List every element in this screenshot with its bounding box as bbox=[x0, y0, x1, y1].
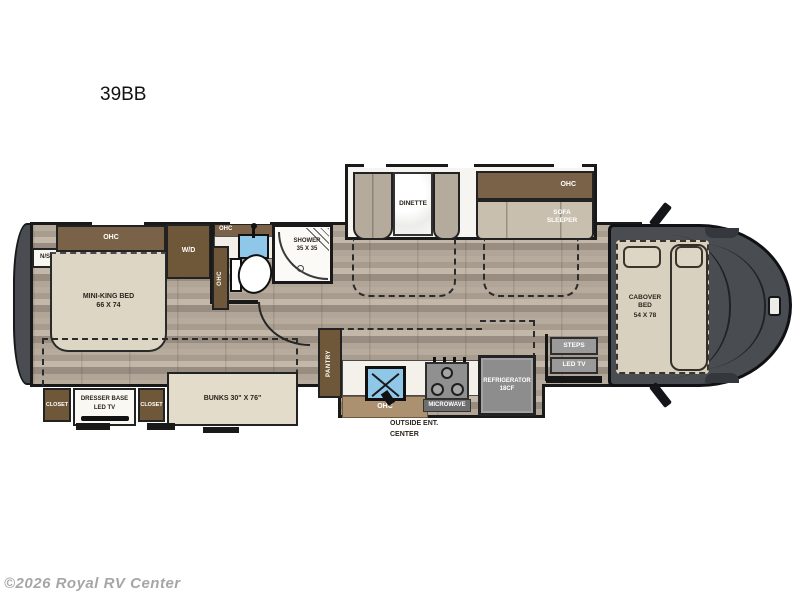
bunks: BUNKS 30" X 76" bbox=[167, 372, 298, 426]
dinette-sofa-slideout: DINETTE OHC SOFA SLEEPER bbox=[345, 164, 597, 240]
cooktop bbox=[425, 362, 469, 400]
bedroom-ohc-label: OHC bbox=[103, 234, 119, 243]
outside-entertainment-label: OUTSIDE ENT. CENTER bbox=[390, 420, 500, 440]
bath-side-cabinet: OHC bbox=[212, 246, 229, 310]
sofa-sleeper-label: SOFA SLEEPER bbox=[532, 209, 592, 225]
support-foot bbox=[203, 427, 239, 433]
bedroom-overhead-cabinet: OHC bbox=[56, 225, 166, 252]
support-foot bbox=[76, 423, 110, 430]
fender-flare bbox=[705, 373, 739, 383]
tv-bar-icon bbox=[81, 416, 129, 421]
kitchen-sink bbox=[365, 366, 406, 401]
dinette-table: DINETTE bbox=[393, 172, 433, 236]
pantry-label: PANTRY bbox=[326, 350, 334, 377]
fender-flare bbox=[705, 228, 739, 238]
cabover-bed: CABOVER BED 54 X 78 bbox=[616, 240, 709, 374]
floorplan-canvas: 39BB DINETTE OHC SOFA SLEEPER OHC bbox=[0, 0, 800, 600]
entry-threshold bbox=[546, 376, 602, 383]
closet-right: CLOSET bbox=[138, 388, 165, 422]
mini-king-bed: MINI-KING BED 66 X 74 bbox=[50, 252, 167, 352]
window-gap bbox=[364, 164, 386, 168]
steps-label: STEPS bbox=[563, 342, 584, 350]
entry-steps: STEPS bbox=[550, 337, 598, 355]
page-title: 39BB bbox=[100, 84, 146, 106]
sofa-retracted-outline bbox=[483, 239, 579, 297]
washer-dryer: W/D bbox=[166, 224, 211, 279]
shower-drain-icon bbox=[297, 265, 304, 272]
shower: SHOWER 35 X 35 bbox=[272, 224, 333, 284]
cooktop-knob bbox=[443, 357, 446, 362]
bath-side-ohc-label: OHC bbox=[217, 271, 225, 286]
dinette-retracted-outline bbox=[352, 239, 456, 297]
burner-icon bbox=[441, 367, 453, 379]
pantry: PANTRY bbox=[318, 328, 342, 398]
cooktop-knob bbox=[453, 357, 456, 362]
watermark: ©2026 Royal RV Center bbox=[4, 575, 181, 592]
entry-wall bbox=[545, 334, 548, 381]
bath-ohc-label: OHC bbox=[219, 226, 232, 234]
dresser-base: DRESSER BASE LED TV bbox=[73, 388, 136, 426]
sofa-overhead-cabinet: OHC bbox=[476, 171, 594, 200]
shower-label: SHOWER 35 X 35 bbox=[283, 238, 331, 253]
burner-icon bbox=[451, 383, 464, 396]
entry-led-tv-label: LED TV bbox=[562, 361, 585, 369]
faucet-icon bbox=[251, 223, 257, 229]
refrigerator: REFRIGERATOR 18CF bbox=[478, 355, 536, 416]
pillow bbox=[675, 246, 703, 268]
cabover-bed-label: CABOVER BED 54 X 78 bbox=[619, 294, 671, 320]
closet-left: CLOSET bbox=[43, 388, 71, 422]
sofa-sleeper: SOFA SLEEPER bbox=[476, 200, 594, 240]
pillow bbox=[623, 246, 661, 268]
sofa-ohc-label: OHC bbox=[560, 181, 576, 190]
dinette-label: DINETTE bbox=[399, 200, 427, 208]
window-gap bbox=[554, 164, 582, 168]
window-gap bbox=[448, 164, 474, 168]
burner-icon bbox=[431, 383, 444, 396]
microwave-label: MICROWAVE bbox=[428, 402, 465, 410]
dinette-bench-left bbox=[353, 172, 393, 240]
nightstand-label: N/S bbox=[40, 254, 50, 262]
grille-badge bbox=[768, 296, 781, 316]
dinette-bench-right bbox=[433, 172, 460, 240]
washer-dryer-label: W/D bbox=[182, 247, 196, 256]
cooktop-knob bbox=[463, 357, 466, 362]
microwave: MICROWAVE bbox=[423, 399, 471, 412]
kitchen-slide-outline bbox=[338, 328, 482, 334]
support-foot bbox=[147, 423, 175, 430]
cooktop-knob bbox=[433, 357, 436, 362]
entry-led-tv: LED TV bbox=[550, 357, 598, 374]
